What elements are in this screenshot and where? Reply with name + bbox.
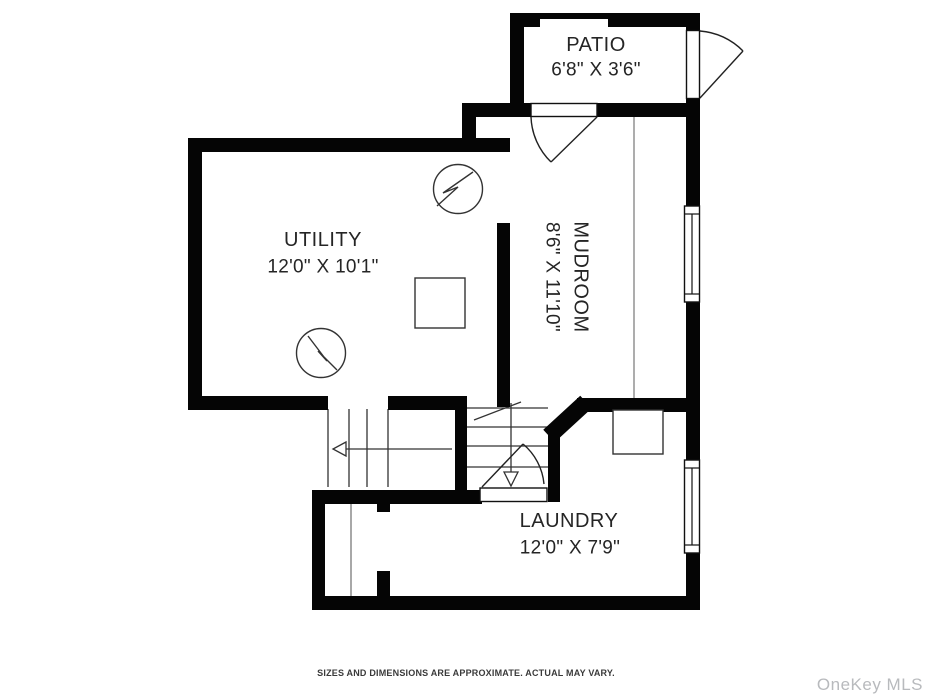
onekey-mls-watermark: OneKey MLS [817, 675, 923, 695]
utility-room-dimensions: 12'0" X 10'1" [267, 258, 378, 277]
mudroom-entry-door-swing-icon [531, 117, 597, 162]
patio-wall-opening [540, 19, 608, 28]
mudroom-room-dimensions: 8'6" X 11'10" [541, 221, 563, 332]
laundry-room-dimensions: 12'0" X 7'9" [520, 539, 620, 558]
disclaimer-text: SIZES AND DIMENSIONS ARE APPROXIMATE. AC… [317, 668, 615, 678]
mudroom-room-label: MUDROOM [569, 221, 592, 332]
utility-meter-circle-bottom-icon [297, 329, 346, 378]
floorplan-canvas [0, 0, 930, 697]
stairs-up-left-icon [328, 409, 452, 487]
stairs-down-right-icon [467, 402, 548, 486]
mudroom-room-label-group: MUDROOM 8'6" X 11'10" [541, 221, 592, 332]
utility-meter-circle-top-icon [434, 165, 483, 214]
laundry-window-icon [685, 460, 700, 553]
patio-exterior-door-icon [687, 31, 700, 99]
floorplan-page: PATIO 6'8" X 3'6" UTILITY 12'0" X 10'1" … [0, 0, 930, 697]
laundry-room-label: LAUNDRY [520, 511, 619, 531]
mudroom-window-icon [685, 206, 700, 302]
patio-room-dimensions: 6'8" X 3'6" [551, 61, 641, 80]
patio-room-label: PATIO [566, 35, 626, 55]
utility-room-label: UTILITY [284, 230, 362, 250]
mudroom-entry-door-icon [531, 104, 597, 117]
utility-equipment-square-icon [415, 278, 465, 328]
laundry-doorway-threshold [480, 488, 547, 502]
laundry-tub-icon [613, 410, 663, 454]
patio-exterior-door-swing-icon [700, 31, 743, 98]
